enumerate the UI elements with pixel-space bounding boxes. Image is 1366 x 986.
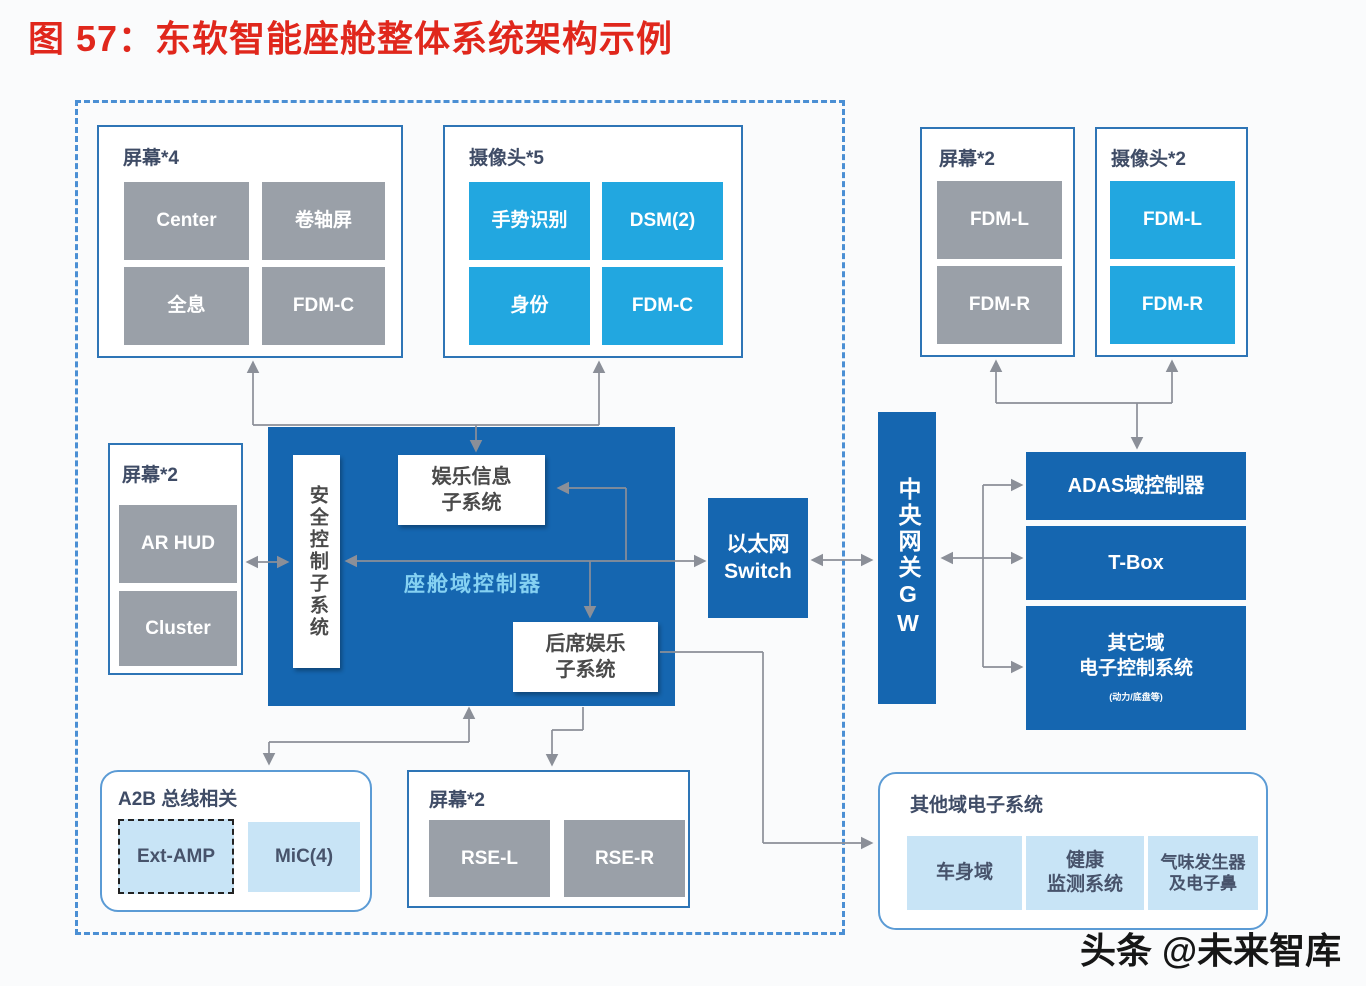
node-fdm-l-screen: FDM-L — [937, 181, 1062, 259]
t-box: T-Box — [1026, 526, 1246, 600]
cameras5-label: 摄像头*5 — [469, 143, 544, 170]
node-fdm-c-screen: FDM-C — [262, 267, 385, 345]
other-domain-ecu-text: 其它域 电子控制系统 (动力/底盘等) — [1079, 608, 1193, 728]
node-hologram-screen: 全息 — [124, 267, 249, 345]
screens4-group: 屏幕*4 Center 卷轴屏 全息 FDM-C — [97, 125, 403, 358]
watermark: 头条 @未来智库 — [1080, 922, 1366, 974]
screens2-top-label: 屏幕*2 — [939, 144, 995, 171]
other-domain-ecu: 其它域 电子控制系统 (动力/底盘等) — [1026, 606, 1246, 730]
screens2-top-group: 屏幕*2 FDM-L FDM-R — [920, 127, 1075, 357]
node-ext-amp: Ext-AMP — [118, 819, 234, 894]
screens2-left-label: 屏幕*2 — [122, 460, 178, 487]
node-fdm-r-camera: FDM-R — [1110, 266, 1235, 344]
other-domain-ecu-note: (动力/底盘等) — [1079, 692, 1193, 704]
node-fdm-l-camera: FDM-L — [1110, 181, 1235, 259]
node-cluster: Cluster — [119, 591, 237, 666]
cameras2-label: 摄像头*2 — [1111, 144, 1186, 171]
a2b-label: A2B 总线相关 — [118, 784, 237, 811]
cockpit-domain-controller-label: 座舱域控制器 — [388, 571, 558, 598]
node-body-domain: 车身域 — [907, 836, 1022, 910]
other-domain-group: 其他域电子系统 车身域 健康 监测系统 气味发生器 及电子鼻 — [878, 772, 1268, 930]
ethernet-switch: 以太网 Switch — [708, 498, 808, 618]
other-domain-ecu-title: 其它域 电子控制系统 — [1079, 633, 1193, 679]
screens2-left-group: 屏幕*2 AR HUD Cluster — [108, 443, 243, 675]
node-scent-generator: 气味发生器 及电子鼻 — [1148, 836, 1258, 910]
cockpit-domain-controller: 安全控制子系统 娱乐信息 子系统 座舱域控制器 后席娱乐 子系统 — [268, 427, 675, 706]
other-domain-label: 其他域电子系统 — [910, 790, 1043, 817]
safety-control-subsystem: 安全控制子系统 — [293, 455, 340, 668]
node-fdm-r-screen: FDM-R — [937, 266, 1062, 344]
node-rse-l: RSE-L — [429, 820, 550, 897]
node-rse-r: RSE-R — [564, 820, 685, 897]
architecture-diagram: 图 57：东软智能座舱整体系统架构示例 屏幕*4 Center 卷轴屏 全息 F… — [0, 0, 1366, 986]
a2b-group: A2B 总线相关 Ext-AMP MiC(4) — [100, 770, 372, 912]
screens4-label: 屏幕*4 — [123, 143, 179, 170]
figure-title: 图 57：东软智能座舱整体系统架构示例 — [28, 10, 673, 62]
cameras5-group: 摄像头*5 手势识别 DSM(2) 身份 FDM-C — [443, 125, 743, 358]
node-ar-hud: AR HUD — [119, 505, 237, 583]
node-mic4: MiC(4) — [248, 822, 360, 892]
node-gesture-camera: 手势识别 — [469, 182, 590, 260]
node-identity-camera: 身份 — [469, 267, 590, 345]
node-fdm-c-camera: FDM-C — [602, 267, 723, 345]
central-gateway: 中央网关GW — [878, 412, 936, 704]
infotainment-subsystem: 娱乐信息 子系统 — [398, 455, 545, 525]
adas-domain-controller: ADAS域控制器 — [1026, 452, 1246, 520]
node-center-screen: Center — [124, 182, 249, 260]
screens2-bottom-label: 屏幕*2 — [429, 785, 485, 812]
node-scroll-screen: 卷轴屏 — [262, 182, 385, 260]
cameras2-group: 摄像头*2 FDM-L FDM-R — [1095, 127, 1248, 357]
rear-seat-entertainment-subsystem: 后席娱乐 子系统 — [513, 622, 658, 692]
node-health-monitoring: 健康 监测系统 — [1026, 836, 1144, 910]
screens2-bottom-group: 屏幕*2 RSE-L RSE-R — [407, 770, 690, 908]
node-dsm-camera: DSM(2) — [602, 182, 723, 260]
